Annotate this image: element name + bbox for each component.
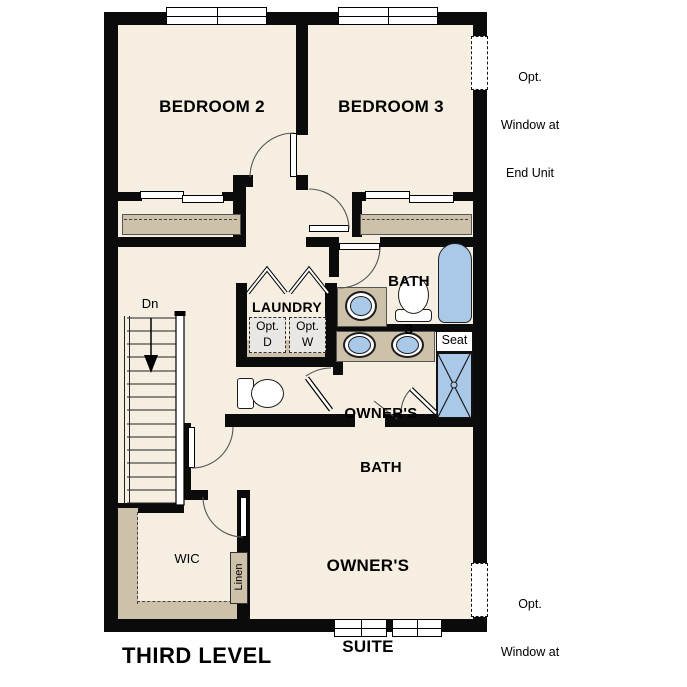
- window: [166, 7, 267, 25]
- owners-bath-line1: OWNER'S: [331, 405, 431, 423]
- shelf-dashed-line: [124, 219, 237, 220]
- label-seat: Seat: [436, 333, 473, 347]
- wall: [180, 490, 208, 500]
- opt-d-label: D: [263, 335, 272, 349]
- closet-bypass-door: [409, 195, 454, 203]
- wic-shelf: [118, 601, 237, 619]
- window: [338, 7, 438, 25]
- label-down: Dn: [130, 296, 170, 311]
- note-line: Window at: [490, 117, 570, 133]
- opt-w-label: Opt.: [296, 319, 319, 333]
- page-title: THIRD LEVEL: [122, 643, 372, 669]
- closet-shelf: [122, 214, 241, 235]
- door-leaf: [188, 427, 195, 468]
- optional-washer: Opt. W: [289, 317, 326, 353]
- door-leaf: [309, 225, 349, 232]
- optional-window: [471, 563, 488, 617]
- bath3-line1: BATH: [359, 274, 459, 290]
- room-label-bedroom3: BEDROOM 3: [291, 97, 491, 117]
- label-linen: Linen: [233, 551, 245, 603]
- closet-bypass-door: [365, 191, 410, 199]
- shelf-dashed-line: [137, 512, 138, 604]
- wall: [118, 237, 246, 247]
- door-leaf: [240, 497, 247, 537]
- shelf-dashed-line: [362, 219, 468, 220]
- wall: [473, 12, 487, 38]
- closet-shelf: [360, 214, 472, 235]
- wall: [329, 237, 339, 277]
- wall: [118, 192, 142, 201]
- closet-bypass-door: [140, 191, 184, 199]
- room-label-wic: WIC: [147, 551, 227, 566]
- wall: [236, 357, 343, 367]
- note-opt-window-top: Opt. Window at End Unit: [490, 37, 570, 213]
- note-line: Opt.: [490, 596, 570, 612]
- optional-dryer: Opt. D: [249, 317, 286, 353]
- wall: [473, 88, 487, 565]
- opt-w-label: W: [302, 335, 313, 349]
- wall: [236, 283, 247, 367]
- note-opt-window-bottom: Opt. Window at End Unit: [490, 564, 570, 687]
- owners-bath-line2: BATH: [331, 459, 431, 477]
- optional-window: [471, 36, 488, 90]
- room-label-laundry: LAUNDRY: [237, 299, 337, 315]
- note-line: Opt.: [490, 69, 570, 85]
- wall: [296, 175, 308, 190]
- floor-plan: Opt. D Opt. W: [0, 0, 687, 687]
- closet-bypass-door: [182, 195, 224, 203]
- wall: [104, 503, 184, 513]
- note-line: Window at: [490, 644, 570, 660]
- opt-d-label: Opt.: [256, 319, 279, 333]
- wall: [296, 25, 308, 135]
- wall: [453, 192, 473, 201]
- door-leaf: [290, 133, 297, 177]
- owners-suite-line1: OWNER'S: [268, 552, 468, 579]
- room-label-bedroom2: BEDROOM 2: [112, 97, 312, 117]
- shelf-dashed-line: [137, 601, 237, 602]
- toilet: [251, 379, 284, 408]
- room-label-bath3: BATH 3: [359, 242, 459, 370]
- note-line: End Unit: [490, 165, 570, 181]
- room-label-owners-bath: OWNER'S BATH: [331, 369, 431, 513]
